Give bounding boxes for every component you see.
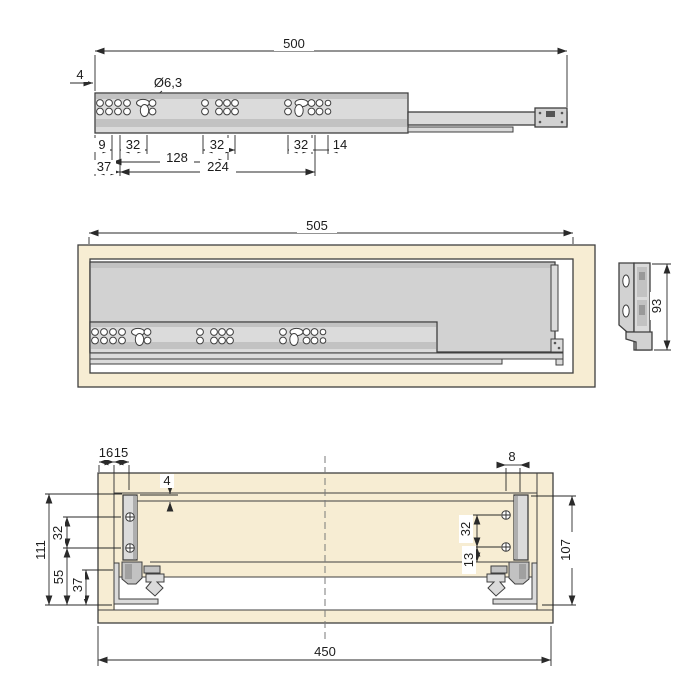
dim-93: 93 (650, 292, 664, 320)
dim-107: 107 (559, 532, 573, 568)
dim-32-right: 32 (459, 515, 473, 543)
dim-32-a: 32 (121, 138, 145, 152)
dim-9: 9 (94, 138, 110, 152)
dim-128: 128 (160, 151, 194, 165)
dim-14: 14 (329, 138, 351, 152)
dim-450: 450 (307, 645, 343, 659)
dim-4-top: 4 (72, 68, 88, 82)
bottom-view-section (45, 456, 576, 666)
dim-505: 505 (297, 219, 337, 233)
dim-4-bottom: 4 (160, 474, 174, 488)
middle-view-drawer (78, 233, 671, 387)
side-profile-section (619, 263, 652, 350)
top-view-rail (70, 51, 567, 176)
dim-32-left: 32 (51, 519, 65, 547)
end-bracket (535, 108, 567, 127)
dim-16: 16 (98, 446, 114, 460)
dim-37-top: 37 (92, 160, 116, 174)
drawing-geometry (0, 0, 700, 700)
dim-13: 13 (462, 546, 476, 574)
dim-55: 55 (52, 563, 66, 591)
technical-drawing-page: 500 4 Ø6,3 9 32 128 32 32 14 37 224 505 … (0, 0, 700, 700)
dim-32-b: 32 (205, 138, 229, 152)
dim-hole-diameter: Ø6,3 (146, 76, 190, 90)
dim-8: 8 (504, 450, 520, 464)
dim-15: 15 (113, 446, 129, 460)
dim-37-bottom: 37 (71, 571, 85, 599)
dim-32-c: 32 (289, 138, 313, 152)
dim-500: 500 (274, 37, 314, 51)
dim-224: 224 (200, 160, 236, 174)
dim-111: 111 (34, 533, 48, 567)
